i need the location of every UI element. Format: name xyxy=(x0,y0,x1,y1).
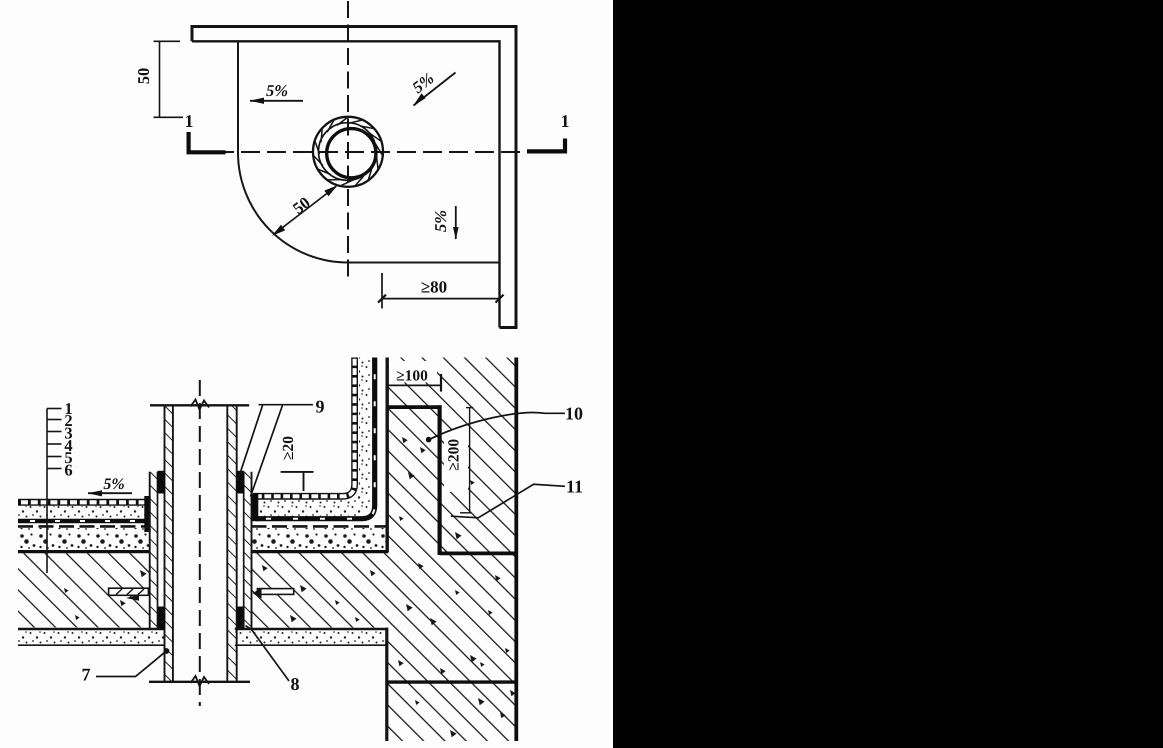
svg-text:1: 1 xyxy=(185,111,194,131)
svg-text:≥80: ≥80 xyxy=(421,278,447,297)
svg-text:≥200: ≥200 xyxy=(446,439,463,471)
svg-text:10: 10 xyxy=(565,404,583,424)
svg-text:50: 50 xyxy=(134,68,153,85)
svg-text:8: 8 xyxy=(291,674,300,694)
svg-text:≥20: ≥20 xyxy=(280,436,297,460)
svg-text:5%: 5% xyxy=(266,81,288,100)
svg-text:11: 11 xyxy=(566,477,583,497)
svg-text:6: 6 xyxy=(64,461,72,480)
svg-text:5%: 5% xyxy=(103,476,124,493)
svg-text:7: 7 xyxy=(82,665,91,685)
svg-text:≥100: ≥100 xyxy=(396,368,428,385)
svg-text:9: 9 xyxy=(316,397,325,417)
svg-text:5%: 5% xyxy=(431,210,450,232)
svg-text:1: 1 xyxy=(561,111,570,131)
